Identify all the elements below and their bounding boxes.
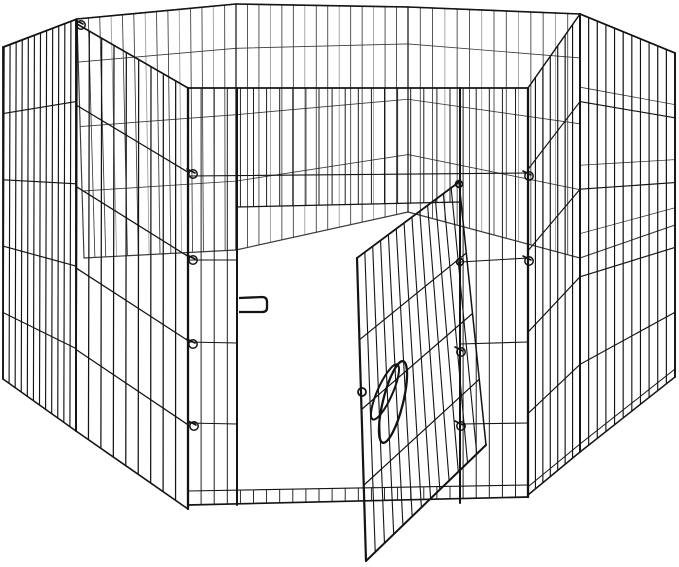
pen-right-front-panel bbox=[528, 14, 580, 495]
pen-left-end-panel bbox=[3, 19, 77, 431]
product-photo bbox=[0, 0, 679, 567]
pen-open-door bbox=[357, 181, 486, 561]
pen-left-front-panel bbox=[76, 24, 188, 509]
panel-connector-clips bbox=[75, 20, 533, 430]
pen-back-middle-panel bbox=[236, 4, 408, 250]
pen-right-inner-panel bbox=[580, 14, 675, 258]
door-handle-bracket bbox=[239, 297, 267, 312]
pen-right-end-panel bbox=[580, 14, 675, 452]
wire-playpen-illustration bbox=[0, 0, 679, 567]
handle-icon bbox=[239, 297, 267, 312]
